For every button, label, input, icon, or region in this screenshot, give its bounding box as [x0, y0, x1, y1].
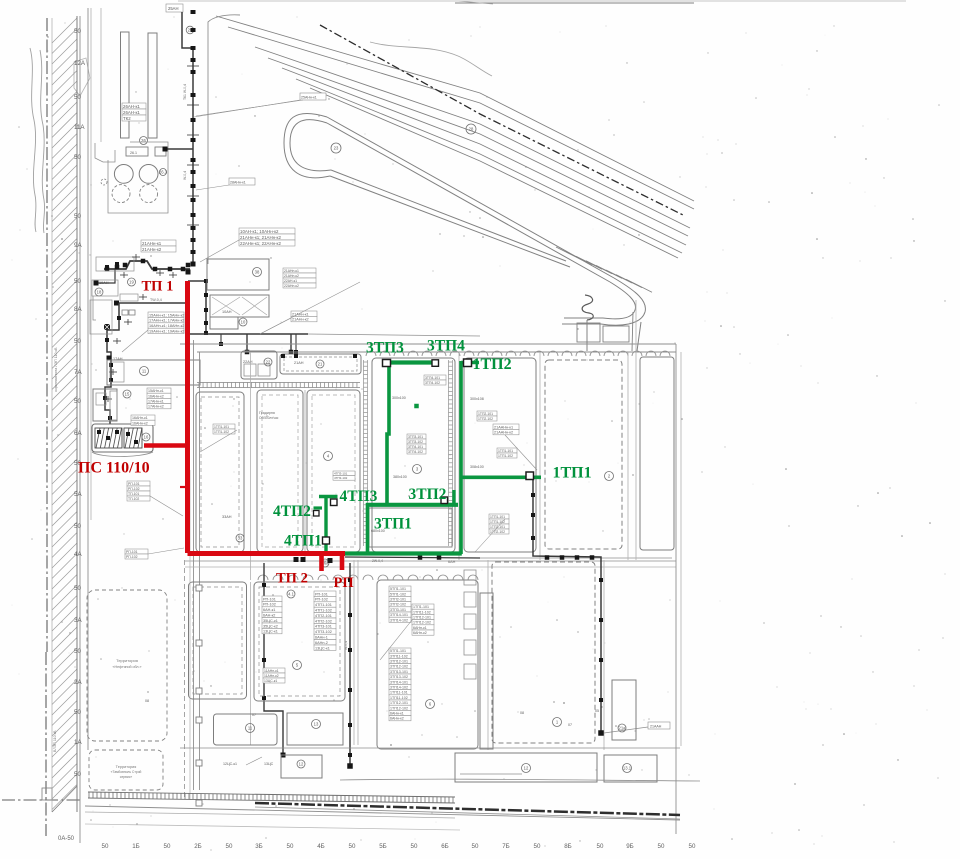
svg-text:12: 12 [524, 766, 529, 771]
svg-text:10АН-к1; 10АНн-к2: 10АН-к1; 10АНн-к2 [240, 229, 279, 234]
svg-text:6АНн-к1: 6АНн-к1 [413, 626, 427, 630]
svg-text:ТП 2: ТП 2 [276, 571, 308, 587]
svg-text:12: 12 [299, 762, 304, 767]
svg-text:50: 50 [74, 278, 81, 285]
svg-text:15АНн-к1; 15АНн-к2: 15АНн-к1; 15АНн-к2 [149, 313, 184, 317]
svg-text:50: 50 [74, 648, 81, 655]
svg-text:7А: 7А [74, 369, 82, 376]
svg-text:50: 50 [74, 398, 81, 405]
svg-text:1ТП1-101: 1ТП1-101 [498, 449, 513, 453]
svg-text:РП-102: РП-102 [263, 603, 276, 607]
svg-text:22: 22 [266, 360, 271, 365]
svg-text:1ТП1-101: 1ТП1-101 [490, 515, 505, 519]
svg-text:0А-50: 0А-50 [58, 836, 75, 842]
svg-text:1ТП1-102: 1ТП1-102 [490, 520, 505, 524]
svg-text:РП-101: РП-101 [126, 550, 138, 554]
svg-text:1ТП2-102: 1ТП2-102 [478, 417, 493, 421]
svg-text:3А: 3А [74, 617, 82, 624]
svg-text:РП-102: РП-102 [126, 555, 138, 559]
svg-text:21АНн-к2: 21АНн-к2 [292, 318, 309, 322]
svg-text:19: 19 [129, 280, 134, 285]
svg-text:РП-102: РП-102 [315, 598, 328, 602]
svg-text:4ТП3-102: 4ТП3-102 [315, 630, 332, 634]
svg-text:8А: 8А [74, 306, 82, 313]
svg-text:13ЦС-к1: 13ЦС-к1 [264, 679, 277, 683]
svg-text:3ТП3-101: 3ТП3-101 [390, 608, 406, 612]
svg-text:22АН-к1: 22АН-к1 [284, 279, 297, 283]
svg-text:1ТП1: 1ТП1 [553, 465, 592, 482]
svg-text:50: 50 [597, 843, 604, 850]
svg-text:300х100: 300х100 [392, 396, 406, 400]
svg-text:3ТП13-102: 3ТП13-102 [390, 675, 408, 679]
svg-text:3ТП13-101: 3ТП13-101 [390, 670, 408, 674]
svg-text:50: 50 [658, 843, 665, 850]
svg-text:11А: 11А [74, 124, 85, 131]
svg-text:ТК1 W-0,4: ТК1 W-0,4 [183, 84, 187, 100]
svg-text:19АНн-к1; 19АНн-к2: 19АНн-к1; 19АНн-к2 [149, 330, 184, 334]
svg-text:5ТП1-102: 5ТП1-102 [390, 592, 406, 596]
svg-text:«Тамбовполь Строй: «Тамбовполь Строй [111, 770, 142, 774]
svg-text:4ТП1-101: 4ТП1-101 [315, 603, 332, 607]
svg-text:1ТП1-102: 1ТП1-102 [214, 430, 229, 434]
svg-text:16АНн-к1: 16АНн-к1 [132, 416, 148, 420]
svg-text:РП-101: РП-101 [128, 482, 140, 486]
svg-text:21АНн-к1: 21АНн-к1 [142, 241, 162, 246]
svg-text:1ТП12-102: 1ТП12-102 [390, 706, 408, 710]
svg-text:3ТП14-102: 3ТП14-102 [390, 618, 408, 622]
svg-text:1ТП1-102: 1ТП1-102 [498, 454, 513, 458]
svg-text:3ТП3: 3ТП3 [366, 340, 404, 357]
svg-text:3ТП14-101: 3ТП14-101 [390, 680, 408, 684]
svg-text:13: 13 [314, 722, 319, 727]
svg-text:1ТП2: 1ТП2 [473, 356, 512, 373]
svg-text:РП-101: РП-101 [315, 592, 328, 596]
svg-text:3ТП2: 3ТП2 [409, 486, 447, 503]
svg-text:50: 50 [349, 843, 356, 850]
svg-text:3ТП2-102: 3ТП2-102 [390, 603, 406, 607]
svg-text:6АНн-к2: 6АНн-к2 [390, 717, 404, 721]
svg-text:РП: РП [334, 575, 354, 591]
svg-text:38: 38 [255, 270, 260, 275]
svg-text:26АН-к1: 26АН-к1 [123, 110, 140, 115]
svg-text:2А: 2А [74, 679, 82, 686]
svg-text:21АНн-к2: 21АНн-к2 [142, 247, 162, 252]
svg-text:8Б: 8Б [564, 843, 572, 850]
svg-text:4ТП3-102: 4ТП3-102 [334, 476, 348, 480]
svg-text:21а: 21а [619, 726, 627, 731]
svg-text:1ТП11-102: 1ТП11-102 [390, 696, 408, 700]
svg-text:18: 18 [97, 290, 102, 295]
svg-text:300х108: 300х108 [470, 397, 484, 401]
svg-text:17АНн-к1: 17АНн-к1 [148, 400, 164, 404]
svg-text:33АН: 33АН [222, 515, 232, 519]
svg-text:11: 11 [142, 369, 147, 374]
svg-text:4ТП2-101: 4ТП2-101 [315, 614, 332, 618]
svg-text:6АН-к1: 6АН-к1 [263, 608, 275, 612]
svg-text:50: 50 [472, 843, 479, 850]
svg-text:4ТП2-102: 4ТП2-102 [315, 619, 332, 623]
svg-text:22АНн-к2: 22АНн-к2 [284, 284, 299, 288]
svg-text:5Б: 5Б [379, 843, 387, 850]
svg-text:1ТП1-101: 1ТП1-101 [413, 605, 429, 609]
svg-text:Территория: Территория [116, 658, 138, 663]
svg-text:4.1: 4.1 [288, 592, 294, 597]
svg-text:3ТП14-101: 3ТП14-101 [390, 613, 408, 617]
svg-text:6АНн-1: 6АНн-1 [315, 636, 328, 640]
svg-text:21АН: 21АН [294, 361, 304, 365]
svg-text:50: 50 [74, 213, 81, 220]
svg-text:10АН: 10АН [222, 310, 232, 314]
svg-text:1ТП2-101: 1ТП2-101 [478, 412, 493, 416]
svg-text:23: 23 [334, 146, 339, 151]
svg-text:5ТП1-101: 5ТП1-101 [390, 587, 406, 591]
svg-text:6АН: 6АН [448, 560, 456, 564]
svg-text:50: 50 [74, 523, 81, 530]
svg-text:3ТП14-102: 3ТП14-102 [390, 686, 408, 690]
svg-text:ТП-102: ТП-102 [128, 497, 139, 501]
svg-text:3ТП4-101: 3ТП4-101 [425, 376, 440, 380]
svg-text:РП-101: РП-101 [263, 597, 276, 601]
svg-text:3Б: 3Б [255, 843, 263, 850]
svg-text:26.3: 26.3 [159, 170, 168, 175]
svg-text:26.1: 26.1 [130, 151, 137, 155]
svg-text:50: 50 [689, 843, 696, 850]
svg-text:охранная зона ЛЭП 110 кВ: охранная зона ЛЭП 110 кВ [54, 347, 58, 392]
svg-text:16: 16 [144, 435, 149, 440]
svg-text:Территория: Территория [116, 765, 137, 769]
svg-text:50: 50 [411, 843, 418, 850]
svg-text:5А: 5А [74, 491, 82, 498]
svg-text:50: 50 [102, 843, 109, 850]
svg-text:1ТП11-102: 1ТП11-102 [413, 610, 431, 614]
svg-text:3ТП4-102: 3ТП4-102 [408, 450, 423, 454]
svg-text:ВЛЭП 110 кВ: ВЛЭП 110 кВ [53, 730, 57, 752]
svg-text:9А: 9А [74, 242, 82, 249]
svg-text:35ЦС-к1: 35ЦС-к1 [263, 619, 278, 623]
svg-text:1ТП12-102: 1ТП12-102 [413, 621, 431, 625]
svg-text:35ЦС-к2: 35ЦС-к2 [263, 624, 278, 628]
svg-text:4ТП1: 4ТП1 [284, 533, 322, 550]
svg-text:50: 50 [164, 843, 171, 850]
svg-text:15: 15 [125, 392, 130, 397]
svg-text:22АНн-к1; 22АНн-к2: 22АНн-к1; 22АНн-к2 [240, 241, 281, 246]
svg-text:21АНн-к1: 21АНн-к1 [284, 269, 299, 273]
svg-text:3ТП11-102: 3ТП11-102 [390, 654, 408, 658]
svg-text:50: 50 [226, 843, 233, 850]
svg-text:308х100: 308х100 [470, 465, 484, 469]
svg-text:05: 05 [595, 709, 599, 713]
svg-text:10: 10 [241, 320, 246, 325]
svg-text:1А: 1А [74, 739, 82, 746]
svg-text:ПС 110/10: ПС 110/10 [78, 460, 150, 477]
svg-text:13ЦС: 13ЦС [264, 762, 274, 766]
svg-text:3ТП12-102: 3ТП12-102 [390, 665, 408, 669]
svg-text:21ААНн-к2: 21ААНн-к2 [494, 431, 513, 435]
svg-text:3ТП12-101: 3ТП12-101 [390, 660, 408, 664]
svg-text:ТW-0,4: ТW-0,4 [150, 298, 162, 302]
svg-text:7Б: 7Б [502, 843, 510, 850]
svg-text:26АН-к1: 26АН-к1 [123, 104, 140, 109]
svg-text:13ЦС-к1: 13ЦС-к1 [263, 630, 278, 634]
svg-text:13ЦС-к1: 13ЦС-к1 [315, 646, 330, 650]
svg-text:21АНн-к2: 21АНн-к2 [284, 274, 299, 278]
svg-text:W-0,4: W-0,4 [183, 171, 187, 180]
svg-text:16АНн-к2: 16АНн-к2 [148, 394, 164, 398]
svg-text:ТП 1: ТП 1 [142, 279, 174, 295]
svg-text:РП-102: РП-102 [128, 487, 140, 491]
svg-text:08: 08 [520, 711, 524, 715]
svg-text:28: 28 [469, 127, 474, 132]
svg-text:07: 07 [252, 713, 256, 717]
svg-text:2W-0,4: 2W-0,4 [372, 559, 383, 563]
svg-text:12А: 12А [74, 60, 86, 67]
svg-text:50: 50 [74, 585, 81, 592]
svg-text:28АНн-к1: 28АНн-к1 [230, 181, 246, 185]
svg-text:08: 08 [145, 699, 149, 703]
svg-text:1Б: 1Б [132, 843, 140, 850]
svg-text:21: 21 [318, 362, 323, 367]
svg-text:2Б: 2Б [194, 843, 202, 850]
svg-text:6АНн-к2: 6АНн-к2 [413, 631, 427, 635]
svg-text:3ТП3-102: 3ТП3-102 [408, 440, 423, 444]
svg-text:50: 50 [74, 28, 81, 35]
svg-text:6АН-к2: 6АН-к2 [263, 614, 275, 618]
svg-text:Градирня: Градирня [259, 411, 275, 415]
svg-text:4ТП3: 4ТП3 [340, 488, 378, 505]
svg-text:11: 11 [248, 726, 253, 731]
svg-text:3ТП4-102: 3ТП4-102 [425, 381, 440, 385]
svg-text:3ТП3-101: 3ТП3-101 [408, 435, 423, 439]
svg-text:1ТП12-101: 1ТП12-101 [390, 701, 408, 705]
svg-text:сервис»: сервис» [120, 775, 133, 779]
svg-text:15АНн-к1: 15АНн-к1 [148, 389, 164, 393]
svg-text:16АНн-к2: 16АНн-к2 [132, 421, 148, 425]
svg-text:4Б: 4Б [317, 843, 325, 850]
svg-text:17АНн-к1; 17АНн-к2: 17АНн-к1; 17АНн-к2 [149, 319, 184, 323]
svg-text:4ТП2: 4ТП2 [273, 503, 311, 520]
svg-text:3ТП1: 3ТП1 [374, 516, 412, 533]
svg-text:1ТП11-101: 1ТП11-101 [390, 691, 408, 695]
svg-text:3ТП2-101: 3ТП2-101 [390, 598, 406, 602]
svg-text:3ТП4-101: 3ТП4-101 [408, 445, 423, 449]
svg-text:6А: 6А [74, 430, 82, 437]
svg-text:«Нефтяной обл.»: «Нефтяной обл.» [112, 665, 141, 669]
svg-text:21ААНн-к1: 21ААНн-к1 [494, 425, 513, 429]
svg-text:4ТП3-101: 4ТП3-101 [315, 625, 332, 629]
svg-text:25АНн-к1: 25АНн-к1 [301, 96, 317, 100]
svg-text:ТК2: ТК2 [123, 116, 131, 121]
svg-text:380х100: 380х100 [393, 475, 407, 479]
svg-text:4ТП1-102: 4ТП1-102 [315, 609, 332, 613]
svg-text:11АНн-к1: 11АНн-к1 [264, 669, 279, 673]
svg-text:25АН: 25АН [168, 6, 178, 11]
svg-text:13.1: 13.1 [623, 766, 632, 771]
svg-text:5ТП1-101: 5ТП1-101 [390, 649, 406, 653]
svg-text:3ТП4: 3ТП4 [427, 338, 465, 355]
svg-text:22АН: 22АН [243, 360, 253, 364]
svg-text:4ТП3-101: 4ТП3-101 [334, 472, 348, 476]
svg-text:07: 07 [568, 723, 572, 727]
svg-text:33: 33 [238, 536, 243, 541]
svg-text:50: 50 [534, 843, 541, 850]
svg-text:12ЦС-к1: 12ЦС-к1 [223, 762, 237, 766]
svg-text:21АНн-к1; 21АНн-к2: 21АНн-к1; 21АНн-к2 [240, 235, 281, 240]
svg-text:6АНн-2: 6АНн-2 [315, 641, 328, 645]
svg-text:50: 50 [74, 154, 81, 161]
svg-text:1ТП1-101: 1ТП1-101 [214, 425, 229, 429]
svg-text:4А: 4А [74, 551, 82, 558]
svg-text:50: 50 [74, 771, 81, 778]
svg-text:1ТП12-101: 1ТП12-101 [413, 616, 431, 620]
svg-text:6Б: 6Б [441, 843, 449, 850]
svg-text:16АНн-к1; 18АНн-к2: 16АНн-к1; 18АНн-к2 [149, 324, 184, 328]
svg-text:50: 50 [74, 338, 81, 345]
svg-text:ТП-101: ТП-101 [128, 492, 139, 496]
svg-text:50: 50 [74, 709, 81, 716]
svg-text:17АНн-к2: 17АНн-к2 [148, 405, 164, 409]
svg-text:21ААН: 21ААН [650, 725, 662, 729]
svg-text:50: 50 [74, 94, 81, 101]
svg-text:50: 50 [287, 843, 294, 850]
svg-text:9Б: 9Б [626, 843, 634, 850]
svg-text:6АНн-к1: 6АНн-к1 [390, 712, 404, 716]
svg-text:11АНн-к2: 11АНн-к2 [264, 674, 279, 678]
